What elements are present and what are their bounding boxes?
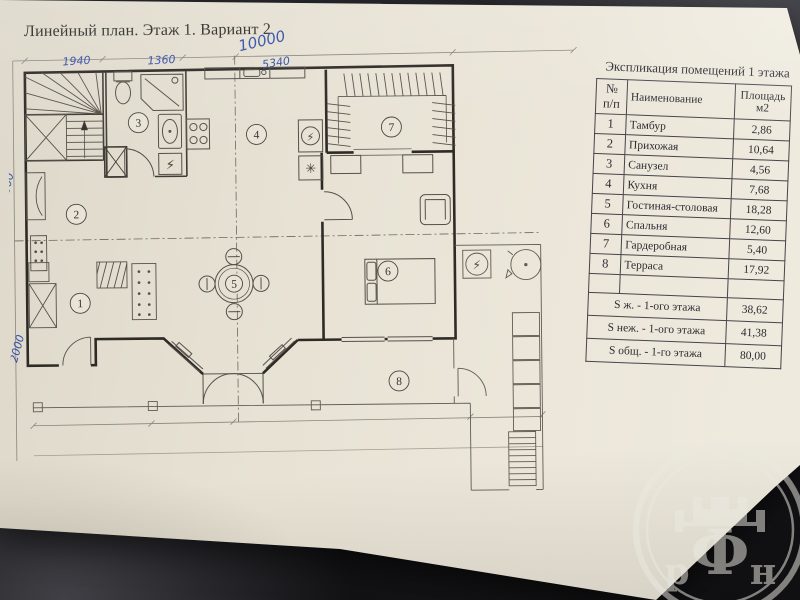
handwritten-dim-1940: 1940	[62, 54, 91, 69]
nightstand	[331, 155, 361, 173]
logo-letter-right: н	[750, 551, 776, 593]
handwritten-dim-6000: 6000	[8, 171, 17, 201]
svg-text:⚡: ⚡	[473, 258, 482, 272]
svg-text:✳: ✳	[305, 162, 316, 177]
fridge-icon: ✳	[299, 156, 323, 180]
handwritten-dim-1360: 1360	[147, 53, 176, 68]
staircase	[25, 72, 104, 161]
deck-post	[148, 401, 157, 410]
nightstand	[403, 155, 433, 173]
deck-post	[311, 401, 320, 410]
svg-text:3: 3	[135, 118, 141, 130]
svg-text:⚡: ⚡	[166, 158, 175, 173]
svg-text:6: 6	[385, 266, 391, 278]
chair	[226, 304, 242, 320]
room-number-5: 5	[225, 275, 242, 292]
col-header-area: Площадь м2	[734, 84, 792, 121]
room-numbers: 1 2 3 4 5 6 7 8	[65, 110, 409, 395]
room-number-8: 8	[389, 371, 409, 391]
armchair	[420, 194, 450, 224]
svg-text:7: 7	[388, 122, 394, 134]
boiler-icon	[506, 249, 541, 279]
left-window	[26, 173, 45, 220]
bath-sink-icon	[158, 114, 181, 148]
bedroom-door	[324, 191, 352, 219]
chair	[226, 249, 242, 265]
explication-table: № п/п Наименование Площадь м2 1Тамбур2,8…	[585, 78, 792, 369]
bathroom-door	[125, 148, 154, 176]
terrace-cabinets	[512, 312, 540, 430]
handwritten-dim-2000: 2000	[8, 333, 28, 363]
room-number-2: 2	[66, 204, 86, 224]
svg-text:5: 5	[231, 279, 237, 291]
logo-letter-center: Ф	[691, 516, 750, 589]
bedroom-furniture	[324, 154, 452, 343]
watermark-logo: Ф р н	[628, 437, 800, 600]
hall-furniture	[26, 171, 157, 365]
cabinet-x	[29, 284, 56, 328]
room-number-1: 1	[70, 293, 90, 313]
svg-text:4: 4	[254, 129, 260, 141]
floor-plan-drawing: ⚡ ⚡ ✳	[8, 47, 588, 513]
terrace-steps	[509, 432, 537, 486]
generator-icon: ⚡	[463, 250, 491, 278]
svg-text:⚡: ⚡	[307, 131, 315, 144]
kitchen-fixtures: ⚡ ✳	[186, 67, 323, 181]
page-title: Линейный план. Этаж 1. Вариант 2	[24, 21, 271, 41]
hatched-closet	[97, 262, 127, 288]
toilet-icon	[114, 72, 132, 104]
col-header-name: Наименование	[627, 80, 735, 119]
dimension-lines	[13, 47, 581, 461]
shelf-dots	[132, 263, 157, 319]
bed	[365, 259, 435, 305]
entry-door	[63, 337, 91, 365]
terrace-door	[458, 368, 486, 396]
svg-text:1: 1	[77, 298, 83, 310]
col-header-num: № п/п	[595, 79, 628, 115]
svg-text:8: 8	[396, 376, 402, 388]
french-doors	[203, 373, 263, 404]
room-number-3: 3	[128, 113, 148, 133]
water-heater-icon: ⚡	[159, 153, 182, 174]
chair	[253, 275, 269, 291]
explication-panel: Экспликация помещений 1 этажа № п/п Наим…	[585, 58, 799, 370]
logo-letter-left: р	[664, 551, 689, 593]
stove-icon	[186, 119, 209, 149]
shower-icon	[141, 74, 183, 110]
electric-panel-icon: ⚡	[298, 120, 322, 152]
wardrobe-rails	[327, 72, 456, 155]
deck-post	[33, 403, 42, 412]
photo-of-floor-plan-document: Линейный план. Этаж 1. Вариант 2 10000	[0, 0, 800, 600]
svg-text:2: 2	[73, 209, 79, 221]
room-number-4: 4	[246, 124, 266, 144]
handwritten-dimensions: 1940 1360 5340 6000 2000	[8, 52, 294, 364]
room-number-7: 7	[381, 117, 401, 137]
interior-walls	[25, 71, 187, 178]
cabinet	[29, 263, 49, 282]
exterior-walls	[25, 65, 456, 375]
bathroom-fixtures: ⚡	[114, 71, 184, 177]
room-number-6: 6	[378, 261, 398, 281]
bay-windows	[169, 338, 295, 372]
chair	[199, 276, 215, 292]
